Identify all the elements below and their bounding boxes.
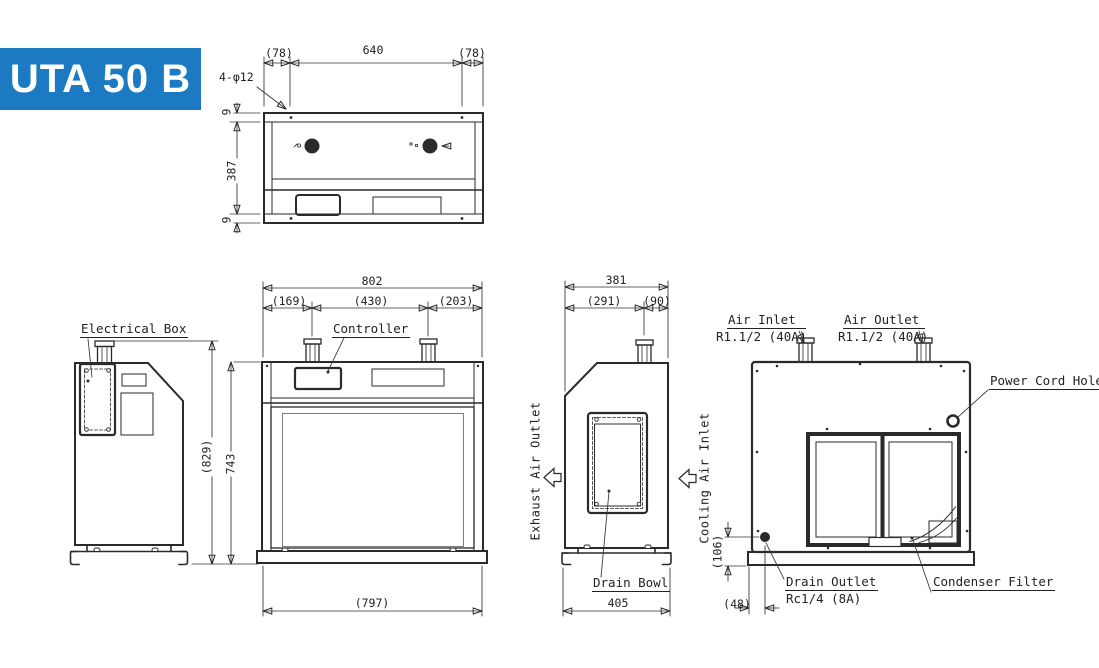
- exhaust-air-arrow-icon: [544, 469, 561, 487]
- dim-mounting-holes: 4-φ12: [219, 71, 254, 84]
- dim-top-left-pad: (78): [265, 47, 293, 60]
- back-view: [722, 331, 988, 614]
- air-outlet-label: Air Outlet: [843, 313, 925, 329]
- drain-outlet-spec: Rc1/4 (8A): [786, 592, 861, 606]
- dim-drain-height: (106): [712, 533, 725, 572]
- cooling-air-inlet-label: Cooling Air Inlet: [699, 412, 712, 543]
- top-view-display-outline: [373, 197, 441, 214]
- dim-top-edge-front: 9: [221, 107, 234, 118]
- drain-outlet-fitting: [760, 532, 770, 542]
- dim-front-overall-width: 802: [362, 275, 383, 288]
- electrical-box-outline: [80, 364, 115, 435]
- pipe-fitting-top-right-icon: [410, 139, 449, 154]
- back-base: [748, 552, 974, 565]
- dim-body-height: 743: [225, 452, 238, 477]
- left-side-view: [71, 339, 188, 565]
- pipe-stub-front-right: [420, 339, 437, 362]
- dim-top-right-pad: (78): [458, 47, 486, 60]
- dim-front-pipe-span: (430): [354, 295, 389, 308]
- dim-side-front: (291): [587, 295, 622, 308]
- foot-right: [655, 548, 671, 565]
- pipe-stub-side: [636, 340, 653, 363]
- foot-left: [562, 548, 578, 565]
- right-side-view: [544, 281, 696, 616]
- dim-front-pipe-right: (203): [439, 295, 474, 308]
- dim-side-overall-depth: 381: [606, 274, 627, 287]
- front-base: [257, 551, 487, 563]
- power-cord-hole: [948, 416, 959, 427]
- cooling-air-arrow-icon: [679, 470, 696, 488]
- pipe-stub-left-view: [95, 341, 114, 363]
- dim-front-base-width: (797): [355, 597, 390, 610]
- air-inlet-spec: R1.1/2 (40A): [716, 330, 806, 344]
- top-view: [230, 57, 483, 233]
- pipe-stub-front-left: [304, 339, 321, 362]
- dim-top-hole-span: 640: [363, 44, 384, 57]
- top-view-controller-outline: [296, 195, 340, 215]
- dim-overall-height: (829): [201, 438, 214, 477]
- front-grille-frame: [271, 407, 474, 548]
- display-panel: [372, 369, 444, 386]
- condenser-filter-label: Condenser Filter: [932, 575, 1055, 591]
- power-cord-hole-label: Power Cord Hole: [989, 374, 1099, 390]
- drawing-sheet: UTA 50 B: [0, 0, 1099, 668]
- drain-bowl-label: Drain Bowl: [592, 576, 670, 592]
- drain-bowl-grille: [588, 413, 647, 513]
- foot-left: [71, 545, 88, 565]
- dim-front-pipe-left: (169): [272, 295, 307, 308]
- condenser-filter-hatch: [910, 507, 957, 543]
- controller-panel: [295, 368, 341, 389]
- pipe-fitting-top-left-icon: [294, 139, 320, 154]
- front-grille: [283, 414, 464, 547]
- service-opening: [808, 434, 959, 547]
- dim-drain-offset: (48): [723, 598, 751, 611]
- electrical-box-label: Electrical Box: [80, 322, 188, 338]
- foot-right: [171, 545, 188, 565]
- dim-top-edge-rear: 9: [221, 215, 234, 226]
- exhaust-air-outlet-label: Exhaust Air Outlet: [530, 401, 543, 540]
- air-inlet-label: Air Inlet: [727, 313, 806, 329]
- handle: [869, 538, 901, 547]
- air-outlet-spec: R1.1/2 (40A): [838, 330, 928, 344]
- dim-side-base-depth: 405: [608, 597, 629, 610]
- dim-side-rear: (90): [643, 295, 671, 308]
- controller-label: Controller: [332, 322, 410, 338]
- dim-top-depth: 387: [226, 159, 239, 184]
- drain-outlet-label: Drain Outlet: [785, 575, 878, 591]
